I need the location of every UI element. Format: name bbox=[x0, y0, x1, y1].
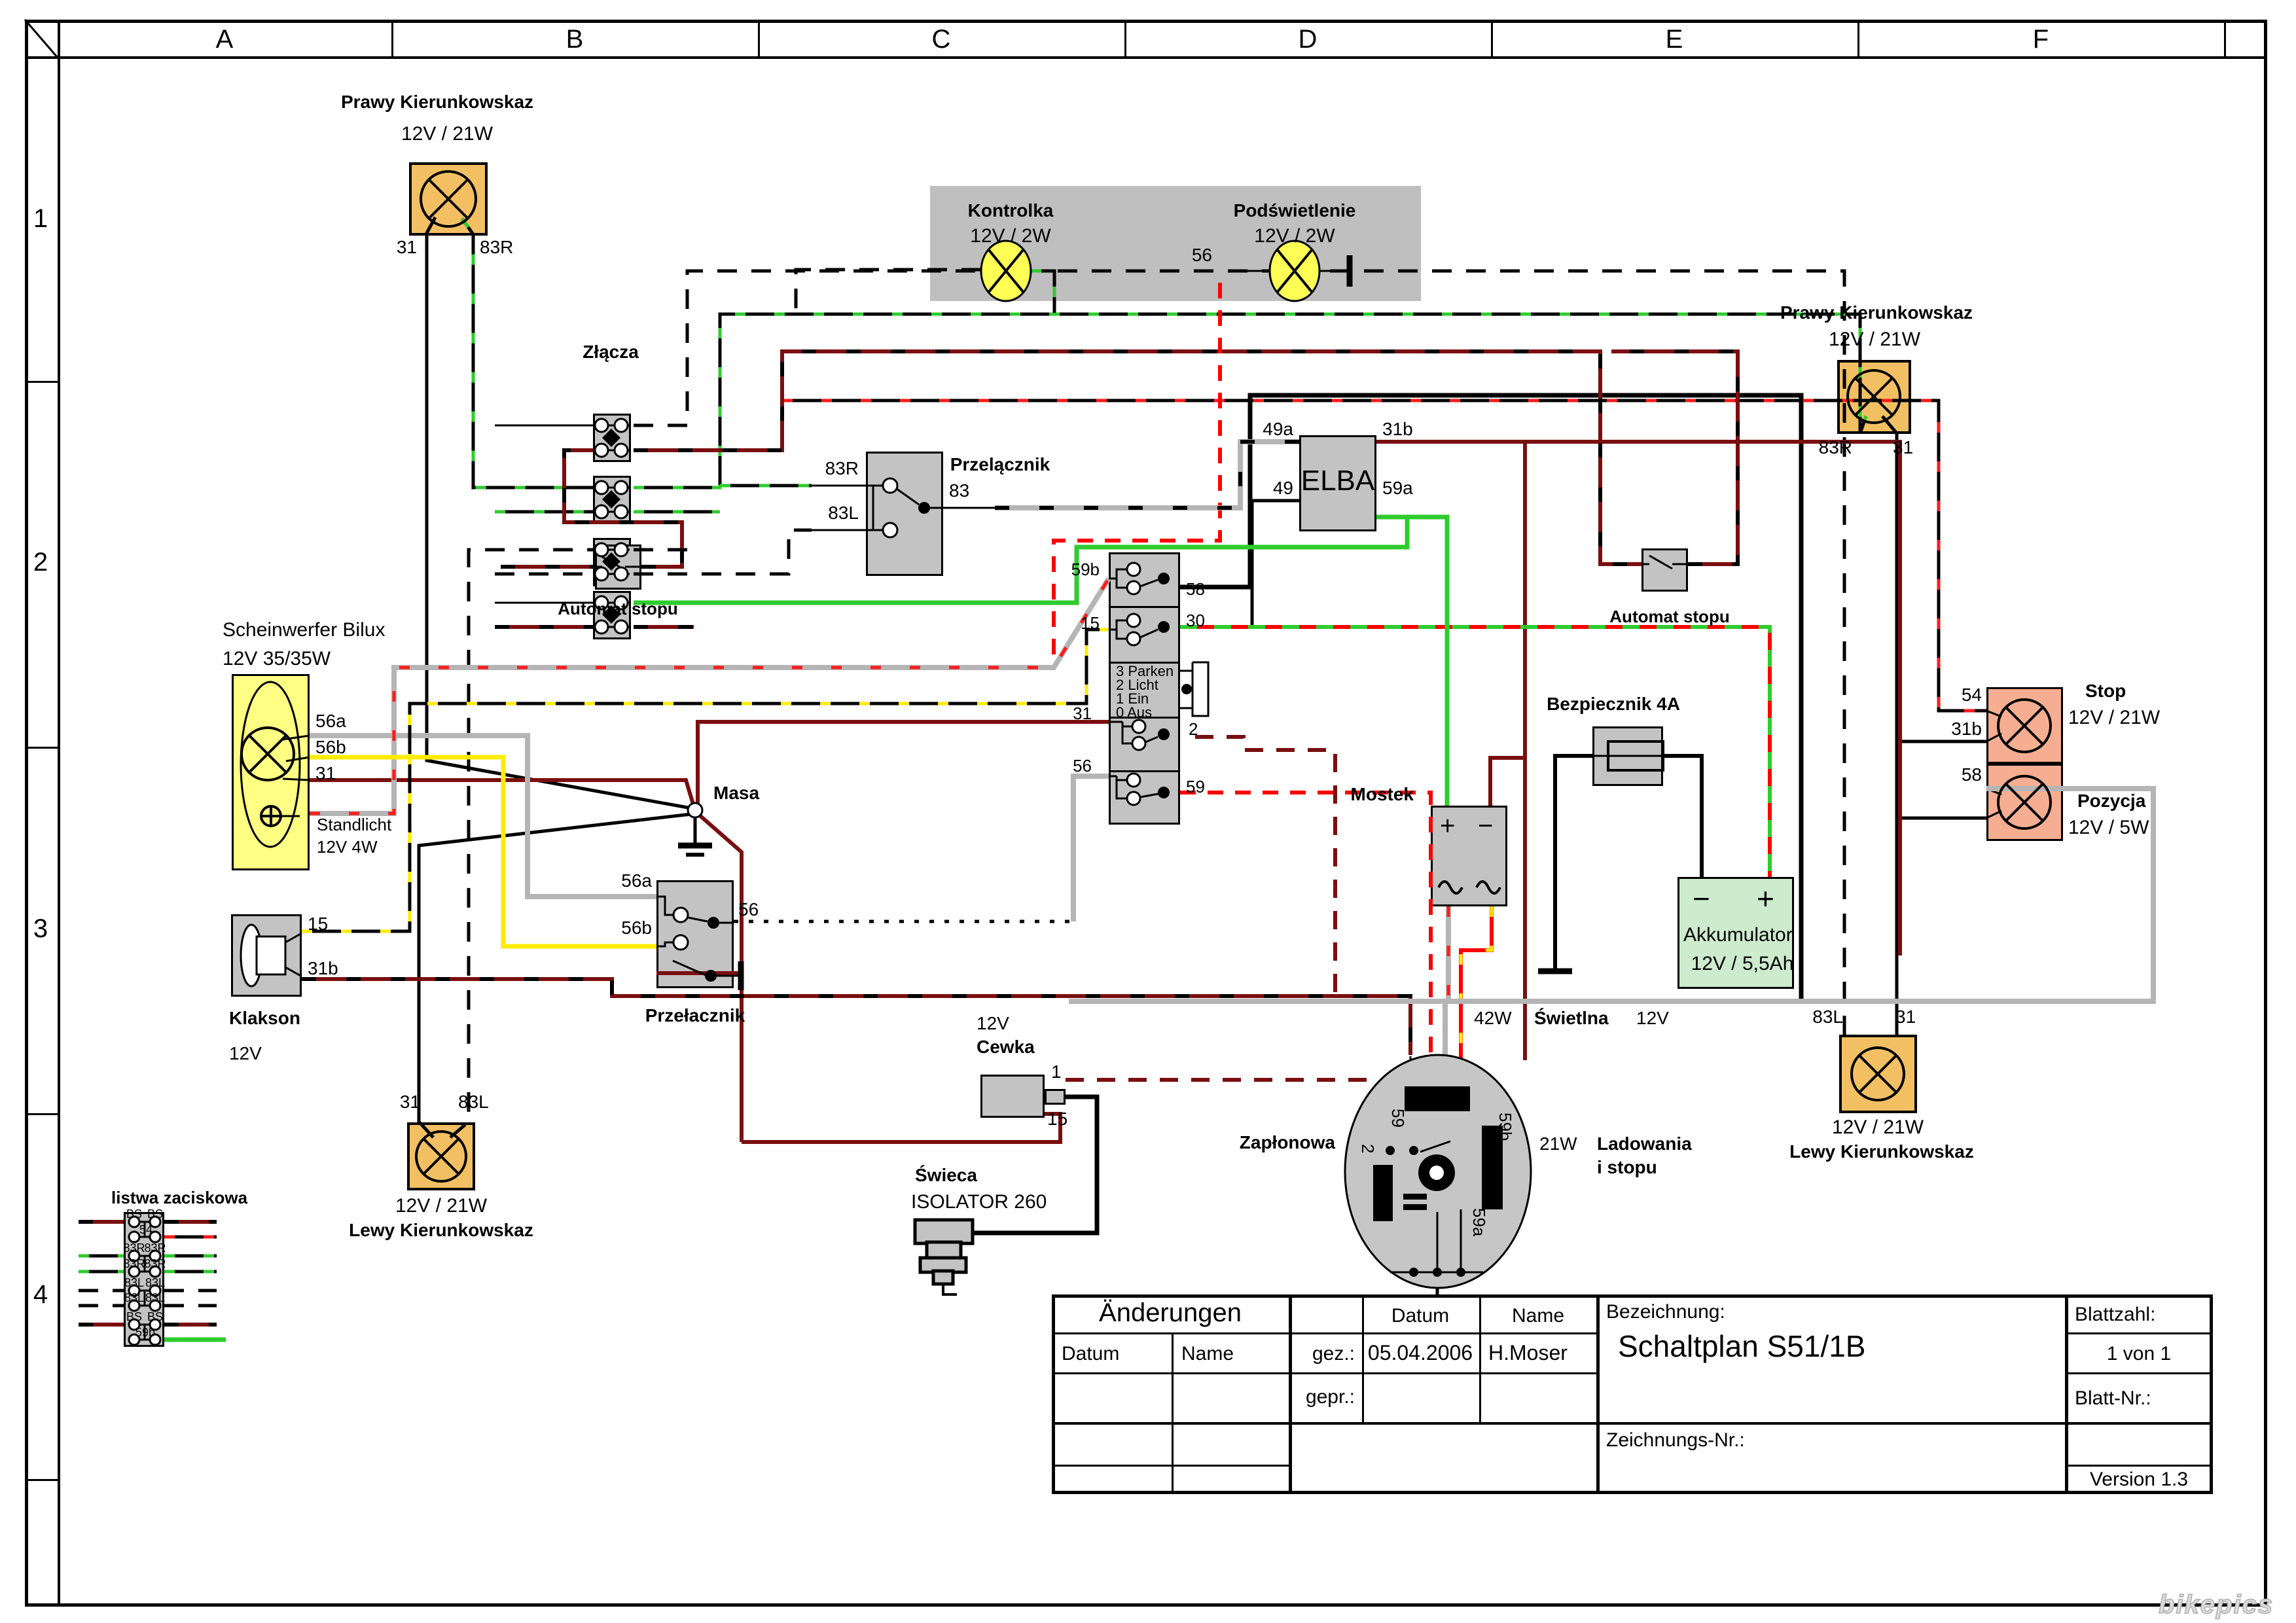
poz-t58: 58 bbox=[1945, 764, 1982, 785]
battery-rating: 12V / 5,5Ah bbox=[1690, 953, 1795, 975]
switch-top-name: Przelącznik bbox=[928, 454, 1072, 474]
col-f: F bbox=[2015, 25, 2067, 54]
col-c: C bbox=[915, 25, 967, 54]
fuse-name: Bezpiecznik 4A bbox=[1518, 694, 1708, 714]
lamp-ftr-t83r: 83R bbox=[480, 237, 539, 257]
coil-t15: 15 bbox=[1047, 1109, 1086, 1129]
row-1: 1 bbox=[27, 204, 54, 234]
wire-59a-group bbox=[1461, 906, 1492, 1079]
stop-t31b: 31b bbox=[1931, 719, 1982, 739]
strip-r4r: 83R bbox=[141, 1257, 170, 1270]
podswietlenie-name: Podświetlenie bbox=[1183, 200, 1406, 221]
strip-r1r: BS bbox=[142, 1207, 168, 1221]
magneto-icon bbox=[1345, 1055, 1531, 1288]
podswietlenie-rating: 12V / 2W bbox=[1210, 225, 1380, 247]
headlight-t56a: 56a bbox=[315, 711, 368, 731]
magneto-right-ladowania: Ladowania bbox=[1597, 1133, 1728, 1154]
tb-gez-datum: 05.04.2006 bbox=[1365, 1342, 1476, 1365]
battery-plus: + bbox=[1757, 882, 1796, 916]
headlight-icon bbox=[241, 682, 300, 847]
row-2: 2 bbox=[27, 548, 54, 577]
dimmer-t56b: 56b bbox=[602, 918, 652, 938]
automat-stopu-right-name: Automat stopu bbox=[1571, 607, 1768, 626]
lamp-rtr-t83r: 83R bbox=[1803, 437, 1852, 457]
magneto-right-21w: 21W bbox=[1539, 1133, 1592, 1154]
ign-t15: 15 bbox=[1054, 614, 1100, 633]
stop-t54: 54 bbox=[1945, 685, 1982, 705]
tb-gez-name: H.Moser bbox=[1488, 1342, 1593, 1365]
ign-pos-0: 0 Aus bbox=[1116, 705, 1178, 721]
connectors-name: Złącza bbox=[545, 342, 676, 362]
stop-name: Stop bbox=[2085, 681, 2197, 701]
coil-t1: 1 bbox=[1051, 1061, 1077, 1082]
ign-t59: 59 bbox=[1186, 777, 1238, 796]
lamp-ftr-rating: 12V / 21W bbox=[349, 123, 545, 145]
dimmer-name: Przełacznik bbox=[597, 1005, 793, 1026]
wire-30-group bbox=[1180, 627, 1770, 877]
lamp-ftr-name: Prawy Kierunkowskaz bbox=[306, 92, 568, 112]
kontrolka-rating: 12V / 2W bbox=[925, 225, 1096, 247]
tb-blatt-nr: Blatt-Nr.: bbox=[2075, 1387, 2206, 1410]
horn-t31b: 31b bbox=[308, 958, 360, 978]
lamp-rbl-rating: 12V / 21W bbox=[1812, 1116, 1943, 1139]
lamp-icon bbox=[416, 171, 2051, 1181]
lamp-rbl-t83l: 83L bbox=[1796, 1007, 1843, 1027]
magneto-top-swietlna: Świetlna bbox=[1534, 1008, 1626, 1028]
tb-anderungen: Änderungen bbox=[1052, 1298, 1289, 1328]
strip-r2r: 54 bbox=[133, 1223, 159, 1236]
dimmer-t56: 56 bbox=[738, 899, 784, 919]
switch-top-t83l: 83L bbox=[793, 503, 859, 523]
magneto-top-12v: 12V bbox=[1636, 1008, 1689, 1028]
kontrolka-name: Kontrolka bbox=[912, 200, 1109, 221]
lamp-rtr-name: Prawy Kierunkowskaz bbox=[1746, 302, 2007, 323]
schaltplan-sheet: A B C D E F 1 2 3 4 bbox=[0, 0, 2296, 1623]
headlight-rating: 12V 35/35W bbox=[223, 648, 419, 670]
lamp-fbl-name: Lewy Kierunkowskaz bbox=[310, 1220, 572, 1240]
headlight-standlicht-rating: 12V 4W bbox=[317, 838, 435, 857]
switch-top-t83: 83 bbox=[949, 480, 1001, 501]
spark-plug-type: ISOLATOR 260 bbox=[911, 1191, 1081, 1213]
bikepics-watermark: bikepics bbox=[2159, 1590, 2274, 1620]
magneto-t2: 2 bbox=[1358, 1144, 1377, 1153]
col-e: E bbox=[1648, 25, 1700, 54]
ign-t56: 56 bbox=[1042, 757, 1092, 776]
ign-t31: 31 bbox=[1042, 704, 1092, 723]
rectifier-plus: + bbox=[1440, 811, 1466, 841]
elba-t31b: 31b bbox=[1382, 419, 1448, 439]
tb-title: Schaltplan S51/1B bbox=[1618, 1330, 2037, 1364]
headlight-t31: 31 bbox=[315, 763, 355, 783]
elba-t59a: 59a bbox=[1382, 478, 1448, 498]
poz-name: Pozycja bbox=[2077, 791, 2208, 811]
horn-name: Klakson bbox=[229, 1008, 360, 1028]
battery-name: Akkumulator bbox=[1683, 924, 1788, 946]
ign-t2: 2 bbox=[1189, 720, 1228, 739]
col-d: D bbox=[1282, 25, 1334, 54]
horn-icon bbox=[241, 925, 285, 986]
rectifier-sine-icon bbox=[1439, 882, 1500, 893]
tb-name-mid: Name bbox=[1489, 1305, 1587, 1327]
elba-t49: 49 bbox=[1234, 478, 1293, 498]
col-b: B bbox=[548, 25, 601, 54]
tb-version: Version 1.3 bbox=[2068, 1469, 2210, 1491]
lamp-rtr-t31: 31 bbox=[1893, 437, 1932, 457]
spark-plug-icon bbox=[915, 1220, 973, 1294]
dimmer-t56a: 56a bbox=[602, 870, 652, 891]
col-a: A bbox=[198, 25, 251, 54]
rectifier-name: Mostek bbox=[1316, 784, 1414, 804]
magneto-t59a: 59a bbox=[1469, 1208, 1488, 1236]
tb-blattzahl: Blattzahl: bbox=[2075, 1304, 2206, 1326]
masa-node bbox=[688, 803, 702, 817]
tb-bezeichnung: Bezeichnung: bbox=[1606, 1301, 1816, 1323]
tb-gez: gez.: bbox=[1293, 1343, 1355, 1365]
strip-r7r: BS bbox=[142, 1310, 168, 1323]
magneto-top-42w: 42W bbox=[1474, 1008, 1526, 1028]
strip-r5r: 83L bbox=[141, 1276, 170, 1289]
dimmer-contacts bbox=[656, 897, 734, 982]
headlight-name: Scheinwerfer Bilux bbox=[223, 619, 458, 641]
podswietlenie-t56: 56 bbox=[1166, 245, 1212, 265]
magneto-t59: 59 bbox=[1388, 1109, 1407, 1128]
elba-t49a: 49a bbox=[1228, 419, 1293, 439]
magneto-t59b: 59b bbox=[1496, 1113, 1515, 1141]
tb-datum-mid: Datum bbox=[1371, 1305, 1469, 1327]
lamp-rbl-name: Lewy Kierunkowskaz bbox=[1751, 1141, 2013, 1162]
magneto-right-istopu: i stopu bbox=[1597, 1157, 1689, 1177]
rectifier-minus: − bbox=[1478, 811, 1511, 841]
masa-label: Masa bbox=[713, 783, 805, 803]
magneto-name: Zapłonowa bbox=[1230, 1132, 1335, 1152]
tb-blatt-count: 1 von 1 bbox=[2068, 1343, 2210, 1365]
elba-name: ELBA bbox=[1299, 465, 1376, 497]
horn-t15: 15 bbox=[308, 914, 347, 934]
coil-name: Cewka bbox=[977, 1037, 1062, 1057]
switch-top-contacts bbox=[873, 478, 930, 537]
stop-rating: 12V / 21W bbox=[2068, 707, 2212, 729]
battery-minus: − bbox=[1693, 882, 1732, 916]
lamp-fbl-t31: 31 bbox=[384, 1092, 420, 1112]
lamp-rbl-t31: 31 bbox=[1895, 1007, 1935, 1027]
horn-rating: 12V bbox=[229, 1043, 308, 1063]
poz-rating: 12V / 5W bbox=[2068, 817, 2199, 839]
coil-voltage: 12V bbox=[977, 1013, 1035, 1033]
headlight-t56b: 56b bbox=[315, 737, 368, 757]
tb-gepr: gepr.: bbox=[1293, 1386, 1355, 1408]
tb-zeichnungs-nr: Zeichnungs-Nr.: bbox=[1606, 1429, 1829, 1452]
terminal-strip-name: listwa zaciskowa bbox=[111, 1188, 281, 1207]
tb-name-left: Name bbox=[1181, 1343, 1280, 1365]
ign-t59b: 59b bbox=[1045, 560, 1100, 579]
lamp-fbl-rating: 12V / 21W bbox=[376, 1195, 507, 1217]
ign-t58: 58 bbox=[1186, 580, 1238, 599]
row-3: 3 bbox=[27, 914, 54, 944]
spark-plug-name: Świeca bbox=[915, 1165, 1013, 1185]
ign-t30: 30 bbox=[1186, 611, 1238, 630]
frame-corner-diagonal bbox=[25, 20, 58, 58]
automat-stopu-left-name: Automat stopu bbox=[520, 599, 716, 618]
wire-standlicht-group bbox=[310, 579, 1448, 1001]
lamp-ftr-t31: 31 bbox=[368, 237, 417, 257]
headlight-standlicht: Standlicht bbox=[317, 815, 448, 834]
strip-r6r: 83L bbox=[141, 1291, 170, 1304]
row-4: 4 bbox=[27, 1280, 54, 1310]
switch-top-t83r: 83R bbox=[793, 458, 859, 478]
lamp-fbl-t83l: 83L bbox=[458, 1092, 511, 1112]
strip-r3r: 83R bbox=[141, 1241, 170, 1255]
strip-r8r: 59b bbox=[130, 1326, 160, 1339]
tb-datum-left: Datum bbox=[1062, 1343, 1160, 1365]
lamp-rtr-rating: 12V / 21W bbox=[1809, 329, 1940, 351]
